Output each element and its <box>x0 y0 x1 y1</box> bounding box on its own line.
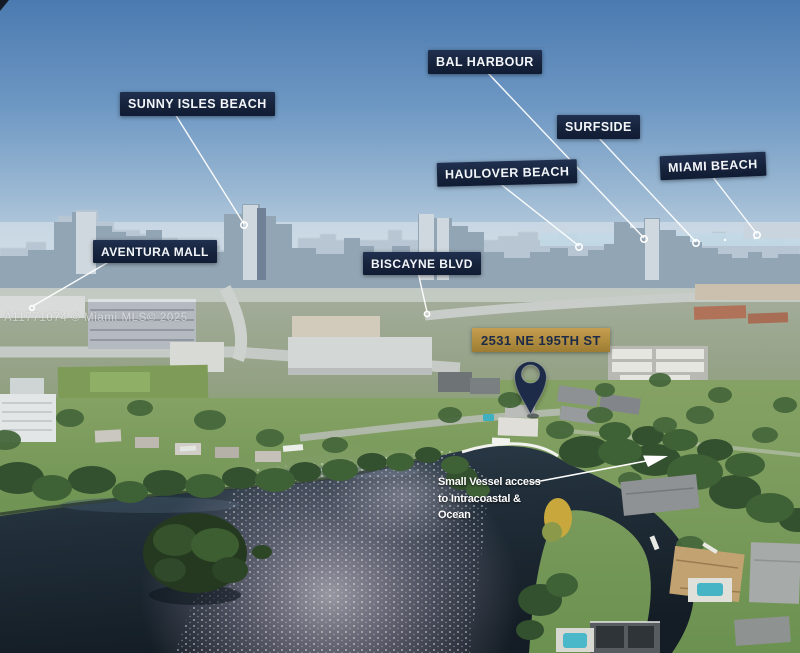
label-miami-beach: MIAMI BEACH <box>660 152 767 180</box>
location-pin-icon <box>512 357 549 416</box>
aerial-listing-photo: BAL HARBOUR SUNNY ISLES BEACH SURFSIDE H… <box>0 0 800 653</box>
label-biscayne-blvd: BISCAYNE BLVD <box>363 252 481 275</box>
label-haulover-beach: HAULOVER BEACH <box>437 159 578 186</box>
label-surfside: SURFSIDE <box>557 115 640 139</box>
label-sunny-isles-beach: SUNNY ISLES BEACH <box>120 92 275 116</box>
property-address-label: 2531 NE 195TH ST <box>472 328 610 352</box>
mls-watermark: A11771074 © Miami MLS© 2025 <box>4 312 188 324</box>
vessel-access-note: Small Vessel access to Intracoastal & Oc… <box>438 474 558 524</box>
label-bal-harbour: BAL HARBOUR <box>428 50 542 74</box>
corner-mark <box>0 0 9 11</box>
label-aventura-mall: AVENTURA MALL <box>93 240 217 263</box>
